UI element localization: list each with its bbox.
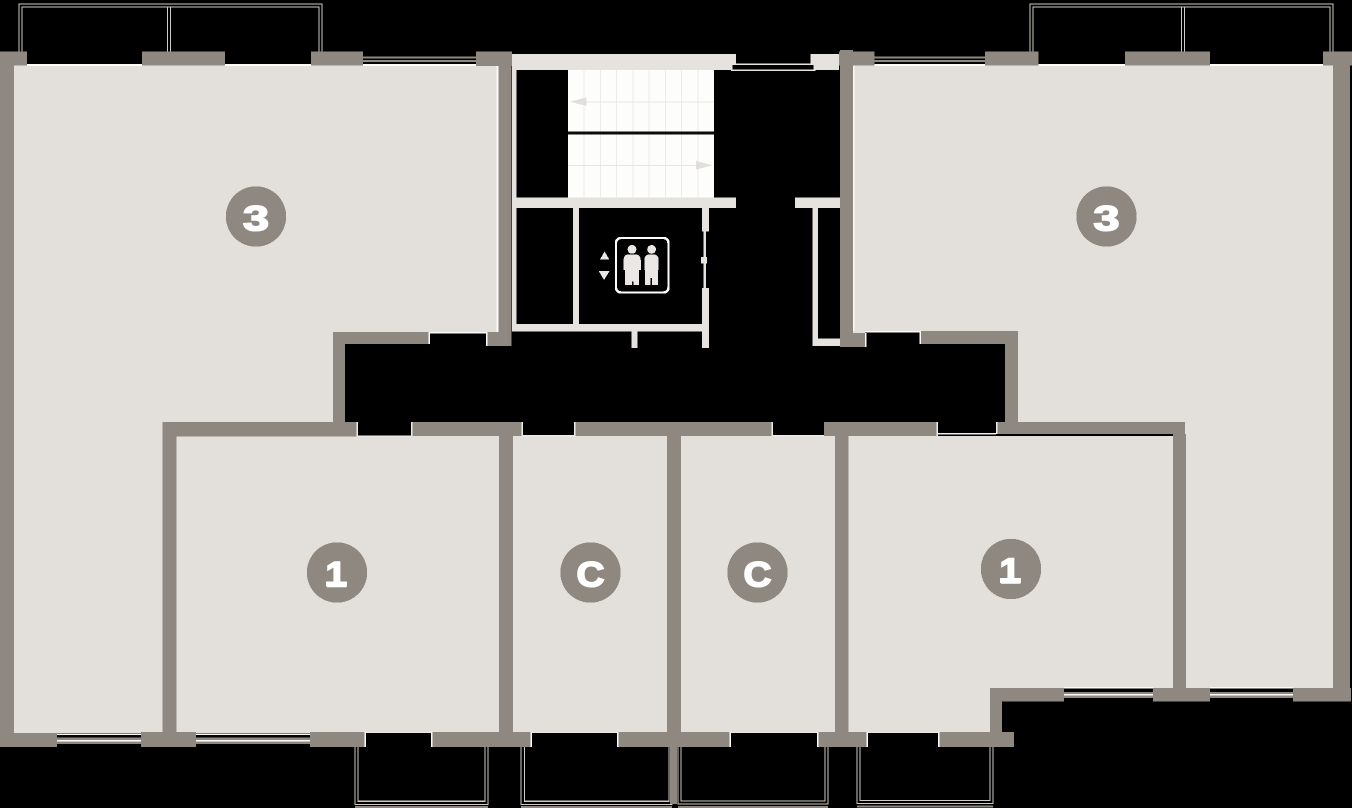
- svg-text:3: 3: [1094, 200, 1120, 239]
- svg-text:1: 1: [1000, 552, 1021, 591]
- svg-text:C: C: [577, 556, 605, 595]
- svg-text:1: 1: [326, 556, 347, 595]
- svg-text:3: 3: [243, 200, 269, 239]
- svg-text:C: C: [744, 556, 772, 595]
